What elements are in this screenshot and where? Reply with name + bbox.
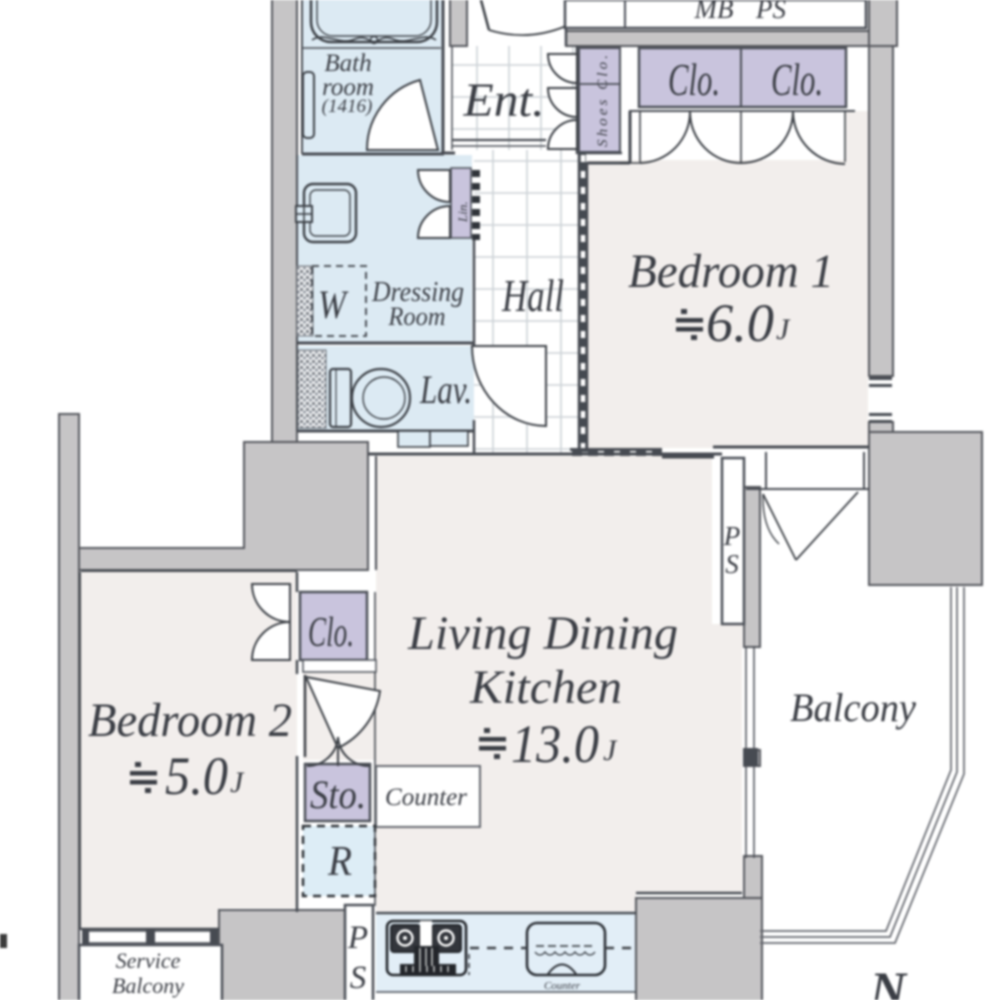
svg-text:Room: Room <box>388 302 446 331</box>
svg-text:Bedroom 2: Bedroom 2 <box>88 694 292 747</box>
svg-text:R: R <box>327 839 352 885</box>
svg-text:Bath: Bath <box>324 50 371 77</box>
svg-text:Counter: Counter <box>385 784 467 811</box>
svg-text:S: S <box>350 960 367 996</box>
svg-text:Clo.: Clo. <box>771 54 823 105</box>
svg-text:Balcony: Balcony <box>112 973 184 998</box>
svg-text:J: J <box>603 734 618 767</box>
svg-text:MB: MB <box>694 0 734 24</box>
svg-text:Kitchen: Kitchen <box>469 661 622 714</box>
svg-text:W: W <box>318 282 349 327</box>
svg-text:(1416): (1416) <box>322 96 373 117</box>
svg-text:Hall: Hall <box>501 270 564 321</box>
svg-text:Ent.: Ent. <box>462 74 544 127</box>
svg-text:J: J <box>776 313 791 346</box>
svg-text:Counter: Counter <box>544 980 581 992</box>
svg-text:PS: PS <box>755 0 786 24</box>
svg-text:Living Dining: Living Dining <box>407 607 678 660</box>
svg-text:Bedroom 1: Bedroom 1 <box>628 245 834 298</box>
svg-text:Balcony: Balcony <box>790 685 916 730</box>
svg-text:S: S <box>725 549 739 579</box>
svg-text:N: N <box>869 961 908 1000</box>
svg-text:Clo.: Clo. <box>668 54 720 105</box>
svg-text:P: P <box>723 521 741 551</box>
svg-text:Service: Service <box>116 948 181 973</box>
svg-text:Lin.: Lin. <box>455 201 470 223</box>
svg-text:Clo.: Clo. <box>308 610 354 656</box>
svg-text:5.0: 5.0 <box>165 746 228 806</box>
svg-text:P: P <box>347 920 368 956</box>
svg-text:13.0: 13.0 <box>511 714 599 774</box>
svg-text:6.0: 6.0 <box>706 293 774 353</box>
svg-text:Lav.: Lav. <box>419 367 472 412</box>
svg-text:J: J <box>230 766 245 799</box>
svg-text:Shoes Clo.: Shoes Clo. <box>595 55 611 147</box>
svg-text:Sto.: Sto. <box>310 772 366 817</box>
